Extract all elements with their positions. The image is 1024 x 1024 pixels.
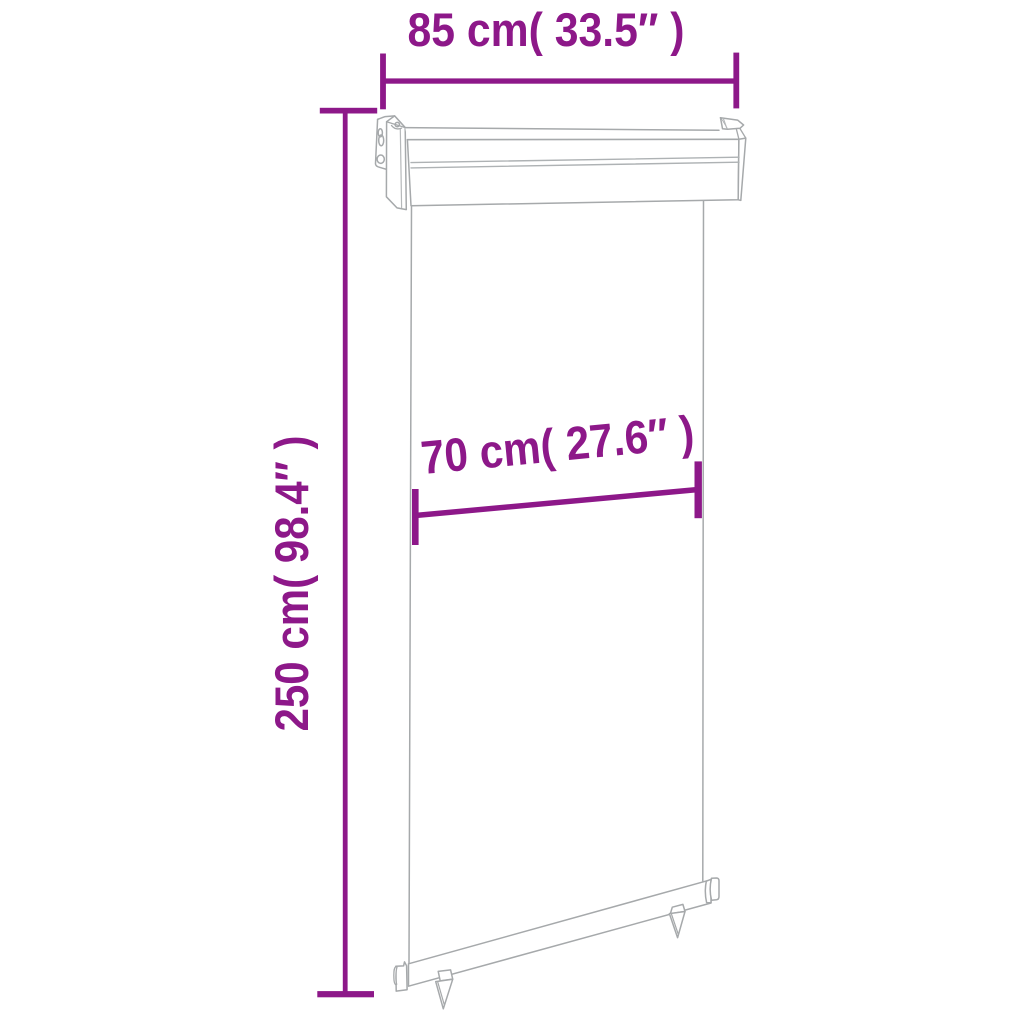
svg-text:250 cm( 98.4″ ): 250 cm( 98.4″ ) xyxy=(265,436,318,732)
svg-text:85 cm( 33.5″ ): 85 cm( 33.5″ ) xyxy=(408,3,685,56)
